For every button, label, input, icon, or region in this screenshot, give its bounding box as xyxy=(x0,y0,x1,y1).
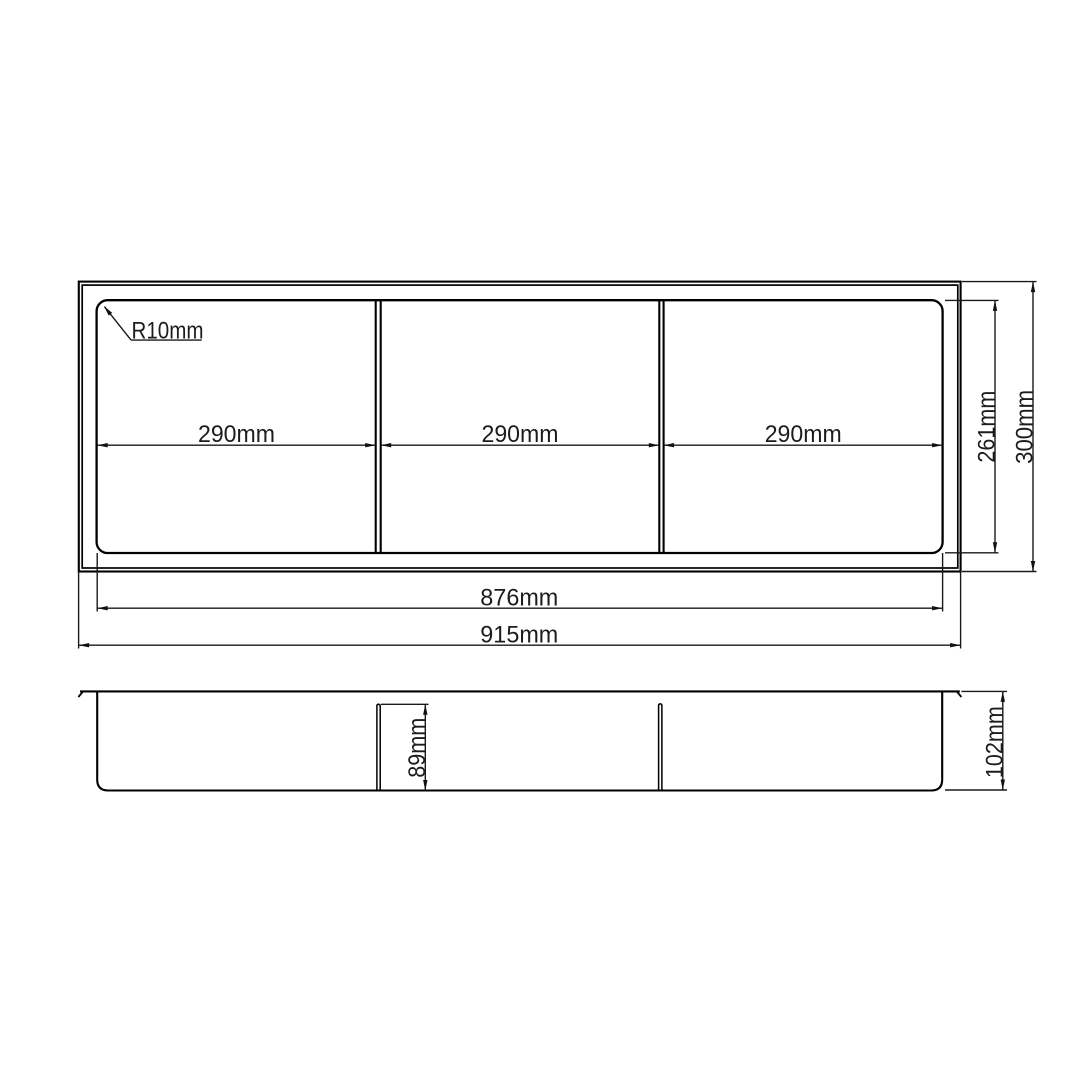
svg-text:300mm: 300mm xyxy=(1012,390,1039,464)
svg-text:102mm: 102mm xyxy=(981,706,1008,778)
svg-text:290mm: 290mm xyxy=(482,421,559,448)
svg-text:R10mm: R10mm xyxy=(132,318,204,345)
svg-text:876mm: 876mm xyxy=(480,585,558,612)
svg-text:290mm: 290mm xyxy=(765,421,842,448)
svg-text:915mm: 915mm xyxy=(480,621,558,648)
svg-text:290mm: 290mm xyxy=(198,421,275,448)
svg-text:261mm: 261mm xyxy=(974,391,1001,463)
svg-text:89mm: 89mm xyxy=(404,718,431,778)
